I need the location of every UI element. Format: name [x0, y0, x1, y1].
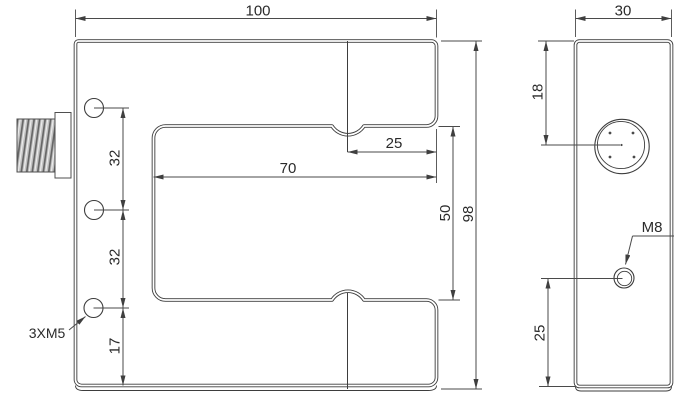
side-view: 30 18 25 M8	[530, 3, 675, 392]
dim-slot-gap-50: 50	[437, 127, 460, 301]
front-view: 100 98 70 25 50	[17, 3, 482, 391]
dim-label-slot-gap: 50	[437, 205, 454, 222]
dim-depth-30: 30	[576, 3, 672, 38]
fork-sensor-drawing: 100 98 70 25 50	[0, 0, 700, 406]
connector-collar	[55, 113, 71, 179]
dimension-drawing: 100 98 70 25 50	[0, 0, 700, 406]
dim-label-bottom-hole-offset: 17	[107, 338, 124, 355]
dim-label-hole-pitch-upper: 32	[107, 150, 124, 167]
dim-label-slot-depth: 70	[280, 160, 297, 177]
lens-center-mark	[620, 144, 622, 146]
dim-label-depth: 30	[615, 3, 632, 20]
dim-width-100: 100	[76, 3, 437, 38]
mounting-holes-label: 3XM5	[29, 325, 66, 341]
dim-label-m8-offset: 25	[532, 325, 549, 342]
dim-label-height: 98	[460, 206, 477, 223]
dim-label-lens-offset: 18	[530, 84, 547, 101]
connector-thread	[17, 119, 55, 172]
front-body-outline	[76, 41, 437, 386]
dim-axis-to-mouth-25: 25	[348, 135, 437, 152]
m8-hole-label: M8	[642, 219, 663, 236]
dim-label-width: 100	[245, 3, 270, 20]
side-body-outline	[576, 41, 672, 387]
cable-connector	[17, 113, 71, 179]
dim-label-axis-to-mouth: 25	[386, 135, 403, 152]
dim-label-hole-pitch-lower: 32	[107, 249, 124, 266]
